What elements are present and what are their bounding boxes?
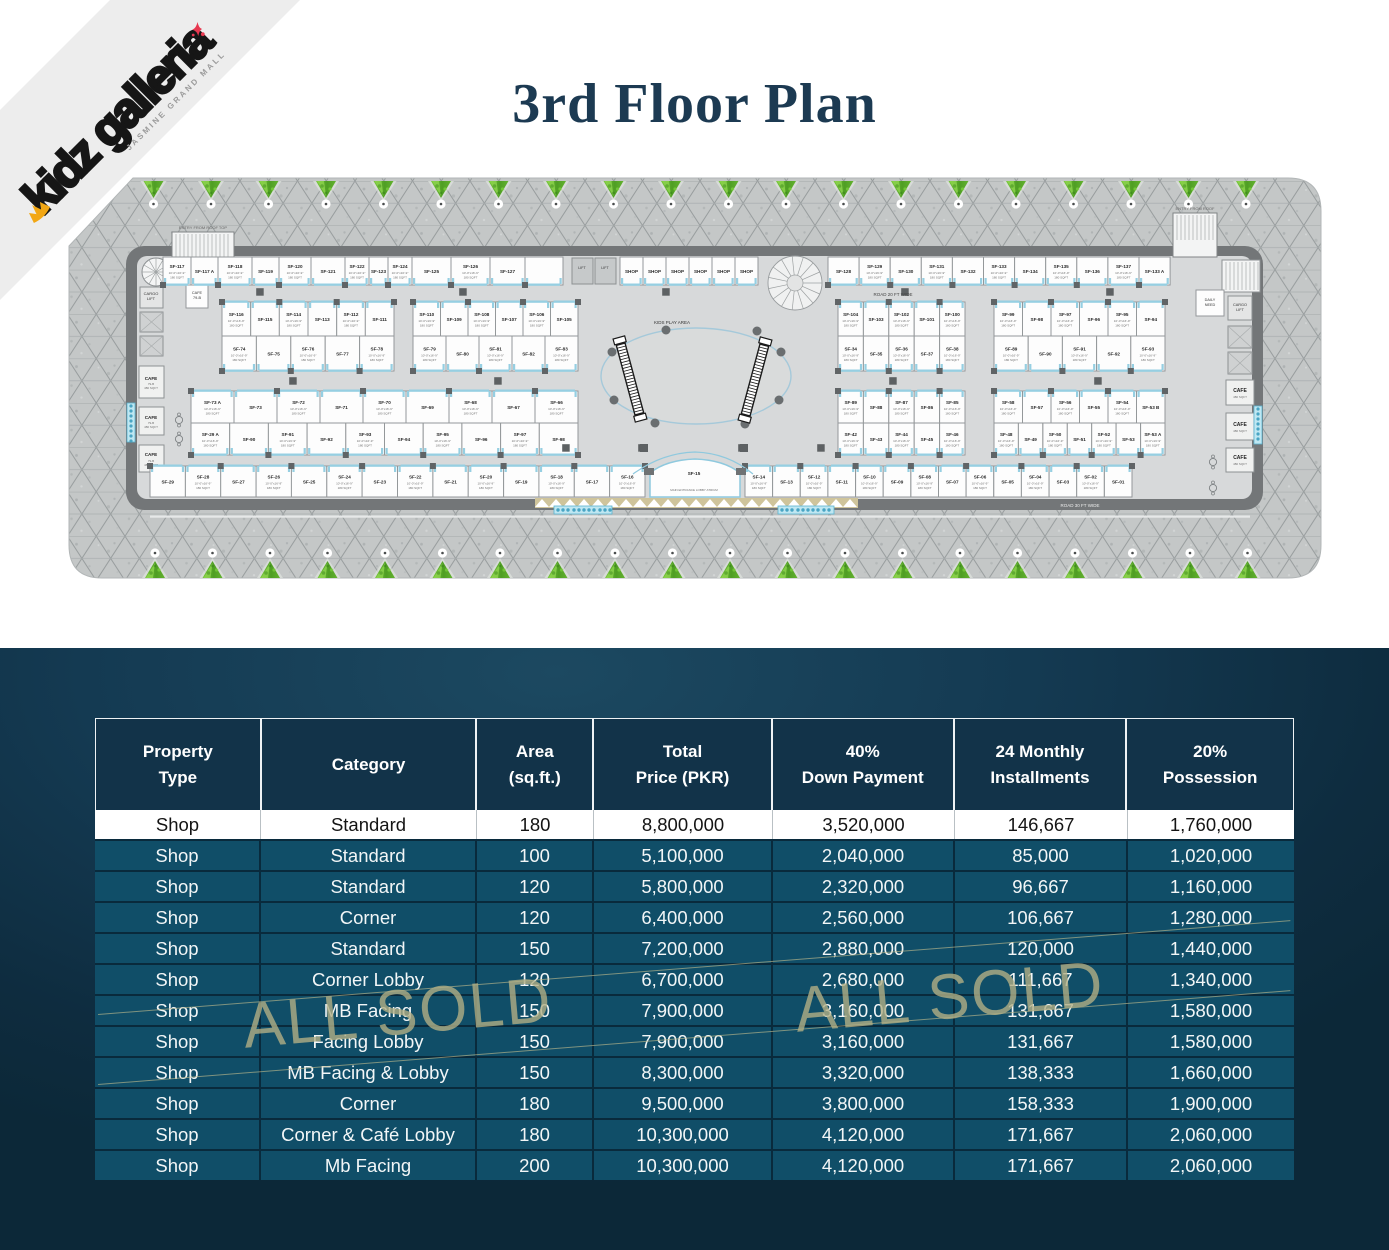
svg-text:SF-45: SF-45 [921, 437, 934, 442]
svg-text:180 SQFT: 180 SQFT [464, 276, 478, 280]
svg-text:SF-96: SF-96 [475, 437, 488, 442]
svg-text:SF-85: SF-85 [946, 400, 959, 405]
svg-text:SF-99: SF-99 [1002, 312, 1015, 317]
svg-text:SF-05: SF-05 [1001, 480, 1014, 485]
svg-text:10'-0"x16'-9": 10'-0"x16'-9" [473, 319, 490, 323]
svg-text:SF-98: SF-98 [1031, 317, 1044, 322]
svg-text:10'-0"x16'-9": 10'-0"x16'-9" [548, 482, 565, 486]
svg-text:SF-133 A: SF-133 A [1145, 269, 1165, 274]
svg-text:180 SQFT: 180 SQFT [550, 486, 564, 490]
svg-text:SF-86: SF-86 [921, 405, 934, 410]
svg-text:ROAD 30 FT WIDE: ROAD 30 FT WIDE [1061, 503, 1100, 508]
svg-text:10'-0"x16'-9": 10'-0"x16'-9" [553, 354, 570, 358]
svg-text:NEED: NEED [1205, 303, 1216, 307]
svg-text:180 SQFT: 180 SQFT [1115, 324, 1129, 328]
svg-text:180 SQFT: 180 SQFT [1097, 444, 1111, 448]
svg-text:180 SQFT: 180 SQFT [338, 486, 352, 490]
svg-text:CARGO: CARGO [1233, 303, 1247, 307]
svg-text:10'-0"x16'-9": 10'-0"x16'-9" [392, 271, 409, 275]
svg-text:10'-0"x16'-9": 10'-0"x16'-9" [1071, 354, 1088, 358]
svg-text:LIFT: LIFT [601, 266, 609, 270]
svg-text:180 SQFT: 180 SQFT [862, 486, 876, 490]
svg-text:180 SQFT: 180 SQFT [1058, 412, 1072, 416]
svg-text:SF-82: SF-82 [522, 352, 535, 357]
svg-text:ENTRY FROM ROOF TOP: ENTRY FROM ROOF TOP [179, 225, 227, 230]
svg-text:180 SQFT: 180 SQFT [868, 276, 882, 280]
svg-text:SF-53 B: SF-53 B [1142, 405, 1160, 410]
svg-text:10'-0"x16'-9": 10'-0"x16'-9" [487, 354, 504, 358]
svg-text:10'-0"x16'-9": 10'-0"x16'-9" [1003, 354, 1020, 358]
svg-text:SF-98: SF-98 [552, 437, 565, 442]
svg-text:SF-50: SF-50 [1049, 432, 1062, 437]
svg-text:10'-0"x16'-9": 10'-0"x16'-9" [806, 482, 823, 486]
svg-text:10'-0"x16'-9": 10'-0"x16'-9" [343, 319, 360, 323]
svg-text:SF-101: SF-101 [919, 317, 935, 322]
svg-text:SF-104: SF-104 [843, 312, 859, 317]
svg-text:SF-79: SF-79 [423, 347, 436, 352]
svg-text:10'-0"x16'-9": 10'-0"x16'-9" [893, 407, 910, 411]
svg-text:10'-0"x16'-9": 10'-0"x16'-9" [944, 407, 961, 411]
svg-text:180 SQFT: 180 SQFT [844, 444, 858, 448]
svg-text:SF-29: SF-29 [161, 480, 174, 485]
svg-text:10'-0"x16'-9": 10'-0"x16'-9" [279, 439, 296, 443]
svg-text:180 SQFT: 180 SQFT [1054, 276, 1068, 280]
svg-text:SF-51: SF-51 [1073, 437, 1086, 442]
svg-text:180 SQFT: 180 SQFT [807, 486, 821, 490]
svg-text:LIFT: LIFT [578, 266, 586, 270]
svg-text:SF-95: SF-95 [1116, 312, 1129, 317]
svg-text:10'-0"x16'-9": 10'-0"x16'-9" [287, 271, 304, 275]
svg-text:ROAD 20 FT WIDE: ROAD 20 FT WIDE [874, 292, 913, 297]
svg-text:180 SQFT: 180 SQFT [292, 412, 306, 416]
svg-text:180 SQFT: 180 SQFT [203, 444, 217, 448]
svg-text:480 SQFT: 480 SQFT [1233, 462, 1247, 466]
svg-text:10'-0"x16'-9": 10'-0"x16'-9" [916, 482, 933, 486]
svg-text:SF-52: SF-52 [1098, 432, 1111, 437]
svg-text:180 SQFT: 180 SQFT [918, 486, 932, 490]
svg-text:SF-29 A: SF-29 A [202, 432, 220, 437]
svg-text:SF-76: SF-76 [302, 347, 315, 352]
svg-text:SF-89: SF-89 [844, 400, 857, 405]
svg-text:SF-18: SF-18 [550, 475, 563, 480]
svg-text:SF-75: SF-75 [267, 352, 280, 357]
svg-text:180 SQFT: 180 SQFT [620, 486, 634, 490]
svg-text:10'-0"x16'-9": 10'-0"x16'-9" [265, 482, 282, 486]
svg-text:180 SQFT: 180 SQFT [1058, 324, 1072, 328]
svg-text:180 SQFT: 180 SQFT [479, 486, 493, 490]
svg-text:10'-0"x16'-9": 10'-0"x16'-9" [998, 439, 1015, 443]
svg-text:180 SQFT: 180 SQFT [945, 444, 959, 448]
svg-text:SF-53 A: SF-53 A [1144, 432, 1162, 437]
svg-text:180 SQFT: 180 SQFT [1001, 324, 1015, 328]
svg-text:SF-123: SF-123 [371, 269, 387, 274]
svg-text:SF-73 A: SF-73 A [204, 400, 222, 405]
svg-text:180 SQFT: 180 SQFT [288, 276, 302, 280]
svg-text:SF-111: SF-111 [372, 317, 387, 322]
svg-text:10'-0"x16'-9": 10'-0"x16'-9" [462, 407, 479, 411]
svg-text:10'-0"x16'-9": 10'-0"x16'-9" [548, 407, 565, 411]
svg-text:KIDS PLAY AREA: KIDS PLAY AREA [654, 320, 690, 325]
svg-text:SF-91: SF-91 [1073, 347, 1086, 352]
svg-text:SF-06: SF-06 [974, 475, 987, 480]
svg-text:10'-0"x16'-9": 10'-0"x16'-9" [228, 319, 245, 323]
svg-text:SF-106: SF-106 [529, 312, 545, 317]
svg-text:CAFE: CAFE [1233, 455, 1247, 461]
svg-text:SF-16: SF-16 [621, 475, 634, 480]
svg-text:10'-0"x16'-9": 10'-0"x16'-9" [842, 439, 859, 443]
svg-text:SF-46: SF-46 [946, 432, 959, 437]
svg-text:79-B: 79-B [193, 296, 201, 300]
svg-text:480 SQFT: 480 SQFT [1233, 395, 1247, 399]
svg-text:10'-0"x16'-9": 10'-0"x16'-9" [991, 271, 1008, 275]
svg-text:10'-0"x16'-9": 10'-0"x16'-9" [1140, 354, 1157, 358]
svg-text:SF-96: SF-96 [1088, 317, 1101, 322]
svg-text:SF-108: SF-108 [474, 312, 490, 317]
svg-text:SF-71: SF-71 [335, 405, 348, 410]
svg-text:10'-0"x16'-9": 10'-0"x16'-9" [1057, 319, 1074, 323]
svg-text:SF-136: SF-136 [1085, 269, 1101, 274]
svg-text:10'-0"x16'-9": 10'-0"x16'-9" [478, 482, 495, 486]
svg-text:SF-117: SF-117 [170, 264, 185, 269]
svg-text:180 SQFT: 180 SQFT [228, 276, 242, 280]
svg-text:SF-93: SF-93 [359, 432, 372, 437]
svg-text:180 SQFT: 180 SQFT [1048, 444, 1062, 448]
svg-text:SF-56: SF-56 [1059, 400, 1072, 405]
svg-text:SF-35: SF-35 [870, 352, 883, 357]
svg-text:10'-0"x16'-9": 10'-0"x16'-9" [368, 354, 385, 358]
svg-text:180 SQFT: 180 SQFT [232, 358, 246, 362]
svg-text:SF-49: SF-49 [1024, 437, 1037, 442]
svg-text:SF-54: SF-54 [1116, 400, 1129, 405]
svg-text:180 SQFT: 180 SQFT [895, 412, 909, 416]
svg-text:180 SQFT: 180 SQFT [973, 486, 987, 490]
svg-text:10'-0"x16'-9": 10'-0"x16'-9" [462, 271, 479, 275]
svg-text:SF-100: SF-100 [945, 312, 961, 317]
svg-text:480 SQFT: 480 SQFT [144, 386, 158, 390]
svg-text:SF-88: SF-88 [870, 405, 883, 410]
svg-text:180 SQFT: 180 SQFT [844, 412, 858, 416]
svg-text:10'-0"x16'-9": 10'-0"x16'-9" [861, 482, 878, 486]
svg-text:SF-128: SF-128 [836, 269, 852, 274]
svg-text:180 SQFT: 180 SQFT [358, 444, 372, 448]
svg-text:SF-125: SF-125 [424, 269, 440, 274]
svg-text:SF-91: SF-91 [282, 432, 295, 437]
svg-text:SF-68: SF-68 [464, 400, 477, 405]
svg-text:10'-0"x16'-9": 10'-0"x16'-9" [944, 354, 961, 358]
svg-text:10'-0"x16'-9": 10'-0"x16'-9" [1027, 482, 1044, 486]
svg-text:SF-124: SF-124 [392, 264, 408, 269]
svg-text:SF-129: SF-129 [867, 264, 883, 269]
svg-text:SF-116: SF-116 [229, 312, 244, 317]
svg-text:SF-105: SF-105 [557, 317, 573, 322]
svg-text:SF-120: SF-120 [287, 264, 303, 269]
svg-text:SF-70: SF-70 [378, 400, 391, 405]
svg-text:180 SQFT: 180 SQFT [550, 412, 564, 416]
svg-text:SF-28: SF-28 [197, 475, 210, 480]
svg-text:SF-43: SF-43 [870, 437, 883, 442]
svg-text:10'-0"x16'-9": 10'-0"x16'-9" [227, 271, 244, 275]
svg-text:180 SQFT: 180 SQFT [844, 358, 858, 362]
svg-text:180 SQFT: 180 SQFT [281, 444, 295, 448]
svg-text:SF-26: SF-26 [268, 475, 281, 480]
svg-text:10'-0"x16'-9": 10'-0"x16'-9" [893, 439, 910, 443]
svg-text:10'-0"x16'-9": 10'-0"x16'-9" [1057, 407, 1074, 411]
svg-text:SF-94: SF-94 [398, 437, 411, 442]
svg-text:180 SQFT: 180 SQFT [170, 276, 184, 280]
svg-text:SF-97: SF-97 [514, 432, 527, 437]
svg-text:10'-0"x16'-9": 10'-0"x16'-9" [1144, 439, 1161, 443]
svg-text:SF-69: SF-69 [421, 405, 434, 410]
svg-text:180 SQFT: 180 SQFT [1117, 276, 1131, 280]
svg-text:SF-137: SF-137 [1116, 264, 1132, 269]
svg-text:SF-112: SF-112 [344, 312, 359, 317]
svg-text:180 SQFT: 180 SQFT [350, 276, 364, 280]
svg-text:SF-04: SF-04 [1029, 475, 1042, 480]
svg-text:10'-0"x16'-9": 10'-0"x16'-9" [750, 482, 767, 486]
svg-text:10'-0"x16'-9": 10'-0"x16'-9" [1114, 319, 1131, 323]
svg-text:10'-0"x16'-9": 10'-0"x16'-9" [944, 439, 961, 443]
svg-text:10'-0"x16'-9": 10'-0"x16'-9" [512, 439, 529, 443]
svg-text:SF-115: SF-115 [258, 317, 273, 322]
svg-text:SF-23: SF-23 [374, 480, 387, 485]
svg-text:10'-0"x16'-9": 10'-0"x16'-9" [866, 271, 883, 275]
svg-text:180 SQFT: 180 SQFT [378, 412, 392, 416]
svg-text:10'-0"x16'-9": 10'-0"x16'-9" [290, 407, 307, 411]
svg-text:180 SQFT: 180 SQFT [1028, 486, 1042, 490]
svg-text:180 SQFT: 180 SQFT [1115, 412, 1129, 416]
svg-text:180 SQFT: 180 SQFT [1084, 486, 1098, 490]
svg-text:SF-03: SF-03 [1057, 480, 1070, 485]
svg-text:CAFE: CAFE [145, 415, 158, 420]
svg-text:SF-121: SF-121 [320, 269, 336, 274]
svg-text:SF-77: SF-77 [336, 352, 349, 357]
svg-text:180 SQFT: 180 SQFT [370, 358, 384, 362]
svg-text:180 SQFT: 180 SQFT [844, 324, 858, 328]
svg-text:SF-66: SF-66 [550, 400, 563, 405]
svg-text:SF-132: SF-132 [960, 269, 976, 274]
svg-text:10'-0"x16'-9": 10'-0"x16'-9" [928, 271, 945, 275]
svg-text:180 SQFT: 180 SQFT [895, 444, 909, 448]
svg-text:180 SQFT: 180 SQFT [196, 486, 210, 490]
svg-text:SF-24: SF-24 [338, 475, 351, 480]
svg-text:SF-103: SF-103 [869, 317, 885, 322]
svg-text:CAFE: CAFE [192, 291, 203, 295]
svg-text:180 SQFT: 180 SQFT [752, 486, 766, 490]
svg-text:SF-21: SF-21 [444, 480, 457, 485]
svg-text:10'-0"x16'-9": 10'-0"x16'-9" [407, 482, 424, 486]
svg-text:SF-67: SF-67 [507, 405, 520, 410]
svg-text:SF-78: SF-78 [371, 347, 384, 352]
svg-text:SF-89: SF-89 [1005, 347, 1018, 352]
svg-text:SF-19: SF-19 [515, 480, 528, 485]
svg-text:180 SQFT: 180 SQFT [436, 444, 450, 448]
svg-text:SF-53: SF-53 [1122, 437, 1135, 442]
svg-text:10'-0"x16'-9": 10'-0"x16'-9" [1047, 439, 1064, 443]
svg-text:CAFE: CAFE [1233, 422, 1247, 428]
svg-text:180 SQFT: 180 SQFT [895, 358, 909, 362]
svg-text:SF-09: SF-09 [891, 480, 904, 485]
svg-text:10'-0"x16'-9": 10'-0"x16'-9" [349, 271, 366, 275]
svg-text:180 SQFT: 180 SQFT [408, 486, 422, 490]
svg-text:SF-17: SF-17 [586, 480, 599, 485]
svg-text:180 SQFT: 180 SQFT [1141, 358, 1155, 362]
svg-text:10'-0"x16'-9": 10'-0"x16'-9" [528, 319, 545, 323]
svg-text:SHOP: SHOP [694, 269, 707, 274]
svg-text:180 SQFT: 180 SQFT [945, 358, 959, 362]
svg-text:10'-0"x16'-9": 10'-0"x16'-9" [1053, 271, 1070, 275]
svg-text:SF-08: SF-08 [918, 475, 931, 480]
svg-text:10'-0"x16'-9": 10'-0"x16'-9" [842, 407, 859, 411]
svg-text:SF-25: SF-25 [303, 480, 316, 485]
svg-text:180 SQFT: 180 SQFT [895, 324, 909, 328]
svg-text:10'-0"x16'-9": 10'-0"x16'-9" [842, 354, 859, 358]
svg-text:10'-0"x16'-9": 10'-0"x16'-9" [376, 407, 393, 411]
svg-text:10'-0"x16'-9": 10'-0"x16'-9" [195, 482, 212, 486]
svg-text:10'-0"x16'-9": 10'-0"x16'-9" [842, 319, 859, 323]
svg-text:SF-12: SF-12 [808, 475, 821, 480]
svg-text:SF-118: SF-118 [228, 264, 243, 269]
svg-text:180 SQFT: 180 SQFT [945, 412, 959, 416]
svg-text:10'-0"x16'-9": 10'-0"x16'-9" [202, 439, 219, 443]
svg-text:180 SQFT: 180 SQFT [555, 358, 569, 362]
svg-text:LIFT: LIFT [1236, 308, 1244, 312]
svg-text:10'-0"x16'-9": 10'-0"x16'-9" [893, 354, 910, 358]
svg-text:SF-83: SF-83 [555, 347, 568, 352]
svg-text:SF-94: SF-94 [1145, 317, 1158, 322]
svg-text:10'-0"x16'-9": 10'-0"x16'-9" [231, 354, 248, 358]
svg-text:180 SQFT: 180 SQFT [464, 412, 478, 416]
svg-text:SF-73: SF-73 [249, 405, 262, 410]
svg-text:SF-15: SF-15 [688, 471, 701, 476]
svg-text:180 SQFT: 180 SQFT [267, 486, 281, 490]
svg-text:SF-102: SF-102 [894, 312, 910, 317]
svg-text:SF-81: SF-81 [489, 347, 502, 352]
svg-text:SF-130: SF-130 [898, 269, 914, 274]
svg-text:SHOP: SHOP [740, 269, 753, 274]
svg-text:180 SQFT: 180 SQFT [475, 324, 489, 328]
svg-text:SF-36: SF-36 [895, 347, 908, 352]
svg-text:SF-55: SF-55 [1088, 405, 1101, 410]
svg-text:SF-126: SF-126 [463, 264, 479, 269]
svg-text:SF-44: SF-44 [895, 432, 908, 437]
svg-text:180 SQFT: 180 SQFT [489, 358, 503, 362]
svg-text:180 SQFT: 180 SQFT [1146, 444, 1160, 448]
svg-text:SF-119: SF-119 [258, 269, 273, 274]
svg-text:10'-0"x16'-9": 10'-0"x16'-9" [1115, 271, 1132, 275]
svg-text:SF-38: SF-38 [946, 347, 959, 352]
svg-text:10'-0"x16'-9": 10'-0"x16'-9" [893, 319, 910, 323]
svg-text:SF-42: SF-42 [844, 432, 857, 437]
svg-text:SF-135: SF-135 [1054, 264, 1070, 269]
svg-text:SF-13: SF-13 [780, 480, 793, 485]
svg-text:10'-0"x16'-9": 10'-0"x16'-9" [1096, 439, 1113, 443]
svg-text:SF-114: SF-114 [286, 312, 301, 317]
svg-text:SF-87: SF-87 [895, 400, 908, 405]
svg-text:10'-0"x16'-9": 10'-0"x16'-9" [1000, 407, 1017, 411]
svg-text:180 SQFT: 180 SQFT [287, 324, 301, 328]
svg-text:10'-0"x16'-9": 10'-0"x16'-9" [169, 271, 186, 275]
svg-text:180 SQFT: 180 SQFT [999, 444, 1013, 448]
svg-text:SHOP: SHOP [625, 269, 638, 274]
svg-text:180 SQFT: 180 SQFT [393, 276, 407, 280]
svg-text:10'-0"x16'-9": 10'-0"x16'-9" [418, 319, 435, 323]
svg-text:SF-107: SF-107 [502, 317, 518, 322]
svg-text:10'-0"x16'-9": 10'-0"x16'-9" [421, 354, 438, 358]
svg-text:180 SQFT: 180 SQFT [513, 444, 527, 448]
svg-text:SF-72: SF-72 [292, 400, 305, 405]
svg-text:SF-20: SF-20 [480, 475, 493, 480]
svg-text:SHOP: SHOP [671, 269, 684, 274]
svg-text:SF-37: SF-37 [921, 352, 934, 357]
svg-text:SHOP: SHOP [648, 269, 661, 274]
svg-text:LIFT: LIFT [147, 296, 156, 301]
svg-text:10'-0"x16'-9": 10'-0"x16'-9" [336, 482, 353, 486]
svg-text:180 SQFT: 180 SQFT [301, 358, 315, 362]
svg-text:10'-0"x16'-9": 10'-0"x16'-9" [1114, 407, 1131, 411]
svg-text:CAFE: CAFE [145, 376, 158, 381]
svg-text:MAIN ENTRANCE LOBBY ATRIUM: MAIN ENTRANCE LOBBY ATRIUM [670, 488, 718, 492]
svg-text:10'-0"x16'-9": 10'-0"x16'-9" [434, 439, 451, 443]
svg-text:CAFE: CAFE [145, 452, 158, 457]
svg-text:180 SQFT: 180 SQFT [423, 358, 437, 362]
svg-text:SHOP: SHOP [717, 269, 730, 274]
svg-text:10'-0"x16'-9": 10'-0"x16'-9" [357, 439, 374, 443]
svg-text:10'-0"x16'-9": 10'-0"x16'-9" [944, 319, 961, 323]
svg-text:10'-0"x16'-9": 10'-0"x16'-9" [972, 482, 989, 486]
svg-text:SF-93: SF-93 [1142, 347, 1155, 352]
svg-text:SF-97: SF-97 [1059, 312, 1072, 317]
svg-text:SF-134: SF-134 [1023, 269, 1039, 274]
svg-text:180 SQFT: 180 SQFT [992, 276, 1006, 280]
svg-text:SF-02: SF-02 [1084, 475, 1097, 480]
svg-text:SF-22: SF-22 [409, 475, 422, 480]
svg-text:SF-57: SF-57 [1031, 405, 1044, 410]
svg-text:SF-110: SF-110 [419, 312, 434, 317]
svg-text:10'-0"x16'-9": 10'-0"x16'-9" [619, 482, 636, 486]
svg-text:10'-0"x16'-9": 10'-0"x16'-9" [1082, 482, 1099, 486]
svg-text:10'-0"x16'-9": 10'-0"x16'-9" [300, 354, 317, 358]
svg-text:180 SQFT: 180 SQFT [1001, 412, 1015, 416]
svg-text:10'-0"x16'-9": 10'-0"x16'-9" [1000, 319, 1017, 323]
svg-text:SF-34: SF-34 [844, 347, 857, 352]
svg-text:SF-131: SF-131 [929, 264, 945, 269]
svg-text:180 SQFT: 180 SQFT [1073, 358, 1087, 362]
svg-text:10'-0"x16'-9": 10'-0"x16'-9" [285, 319, 302, 323]
svg-text:10'-0"x16'-9": 10'-0"x16'-9" [204, 407, 221, 411]
svg-text:SF-90: SF-90 [1039, 352, 1052, 357]
svg-text:SF-117 A: SF-117 A [195, 269, 215, 274]
svg-text:180 SQFT: 180 SQFT [420, 324, 434, 328]
svg-text:SF-10: SF-10 [863, 475, 876, 480]
svg-text:SF-48: SF-48 [1000, 432, 1013, 437]
svg-text:SF-109: SF-109 [447, 317, 463, 322]
svg-text:SF-27: SF-27 [232, 480, 245, 485]
svg-text:180 SQFT: 180 SQFT [206, 412, 220, 416]
svg-text:180 SQFT: 180 SQFT [1004, 358, 1018, 362]
svg-text:SF-133: SF-133 [991, 264, 1007, 269]
svg-text:480 SQFT: 480 SQFT [1233, 429, 1247, 433]
svg-text:180 SQFT: 180 SQFT [344, 324, 358, 328]
svg-text:CAFE: CAFE [1233, 388, 1247, 394]
svg-text:SF-80: SF-80 [456, 352, 469, 357]
svg-text:DAILY: DAILY [1205, 298, 1216, 302]
svg-text:SF-90: SF-90 [243, 437, 256, 442]
svg-text:SF-11: SF-11 [836, 480, 849, 485]
svg-text:SF-07: SF-07 [946, 480, 959, 485]
svg-text:SF-01: SF-01 [1112, 480, 1125, 485]
svg-text:SF-127: SF-127 [500, 269, 516, 274]
svg-text:SF-95: SF-95 [436, 432, 449, 437]
